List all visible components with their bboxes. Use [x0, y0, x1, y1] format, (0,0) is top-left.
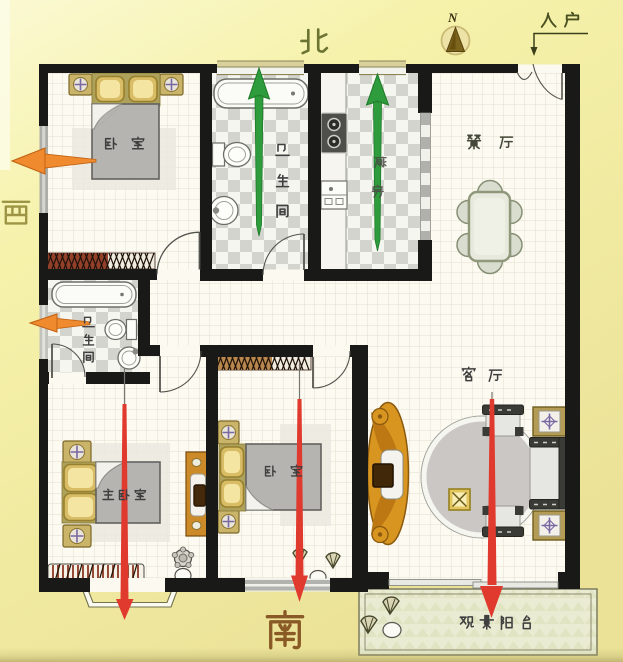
svg-text:N: N: [447, 10, 458, 25]
